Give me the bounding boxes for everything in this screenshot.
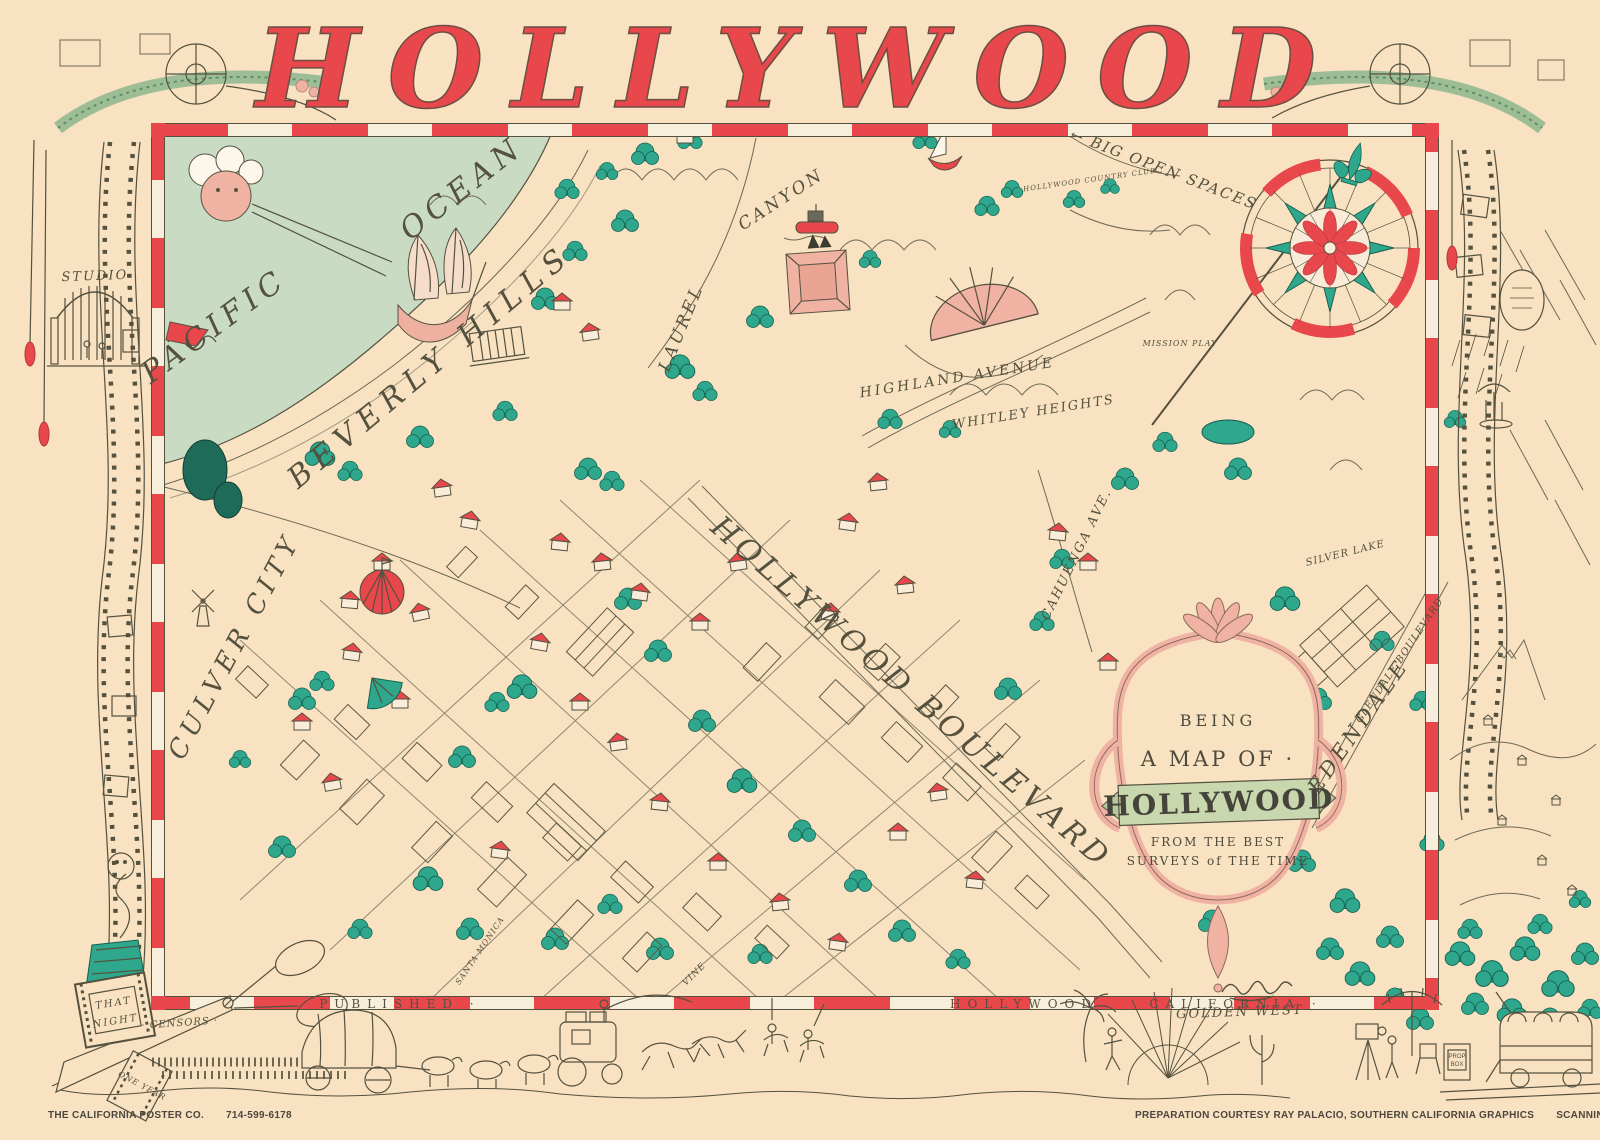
cartouche-line4: FROM THE BEST xyxy=(1151,835,1285,849)
prop-box-label-top: PROP xyxy=(1448,1054,1465,1060)
whitley-heights-label: WHITLEY HEIGHTS xyxy=(951,392,1116,433)
ground-line xyxy=(60,1088,1290,1099)
studio-gate-label: STUDIO xyxy=(61,268,128,285)
preparation-credit: PREPARATION COURTESY RAY PALACIO, SOUTHE… xyxy=(1135,1110,1534,1121)
hollywood-bowl xyxy=(916,254,1038,341)
cartouche-line5: SURVEYS of THE TIME xyxy=(1127,854,1310,868)
vine-street-label: VINE xyxy=(681,961,708,988)
fan-amphitheatre xyxy=(362,672,403,716)
pink-reservoir xyxy=(785,232,850,314)
that-night-film-frame xyxy=(75,972,155,1047)
covered-wagon xyxy=(302,1010,430,1093)
mission-play-label: MISSION PLAY xyxy=(1142,339,1218,348)
production-credits: PREPARATION COURTESY RAY PALACIO, SOUTHE… xyxy=(1135,1110,1600,1121)
border-california-label: CALIFORNIA · xyxy=(1149,997,1322,1011)
cartouche-line1: BEING xyxy=(1180,711,1257,730)
highland-avenue-label: HIGHLAND AVENUE xyxy=(858,355,1057,402)
windmill xyxy=(192,590,214,626)
border-hollywood-label: HOLLYWOOD xyxy=(950,997,1098,1011)
dark-pine-grove xyxy=(183,440,242,518)
city-blocks xyxy=(236,546,1049,972)
film-waste-basket xyxy=(86,874,146,988)
park-lake xyxy=(1202,420,1254,444)
cartouche-line2: A MAP OF · xyxy=(1140,747,1295,771)
oxen-team xyxy=(422,1055,558,1089)
scanning-credit: SCANNINGS COURTESY HEINZ-WEBER xyxy=(1556,1110,1600,1121)
cactus xyxy=(1250,1035,1274,1085)
silver-lake-label: SILVER LAKE xyxy=(1305,538,1386,568)
right-margin-mountains xyxy=(1450,230,1596,905)
right-film-strip xyxy=(1455,150,1507,820)
prop-box-label-bottom: BOX xyxy=(1451,1062,1464,1068)
circus-tent xyxy=(360,558,404,614)
country-club-label: HOLLYWOOD COUNTRY CLUB xyxy=(1022,167,1157,194)
border-published-label: PUBLISHED · xyxy=(319,997,480,1011)
tugboat xyxy=(784,204,838,240)
map-canvas: BEING A MAP OF · HOLLYWOOD FROM THE BEST… xyxy=(0,0,1600,1140)
culver-city-label: CULVER CITY xyxy=(162,528,307,765)
big-open-spaces-label: ← BIG OPEN SPACES xyxy=(1068,125,1260,213)
poster-title: HOLLYWOOD xyxy=(0,4,1600,133)
hollywood-pictorial-map-poster: BEING A MAP OF · HOLLYWOOD FROM THE BEST… xyxy=(0,0,1600,1140)
publisher-credit: THE CALIFORNIA POSTER CO.714-599-6178 xyxy=(48,1110,314,1121)
publisher-phone: 714-599-6178 xyxy=(226,1110,292,1121)
publisher-name: THE CALIFORNIA POSTER CO. xyxy=(48,1110,204,1121)
cartouche: BEING A MAP OF · HOLLYWOOD FROM THE BEST… xyxy=(1094,598,1342,992)
coach-horses xyxy=(642,1030,746,1070)
